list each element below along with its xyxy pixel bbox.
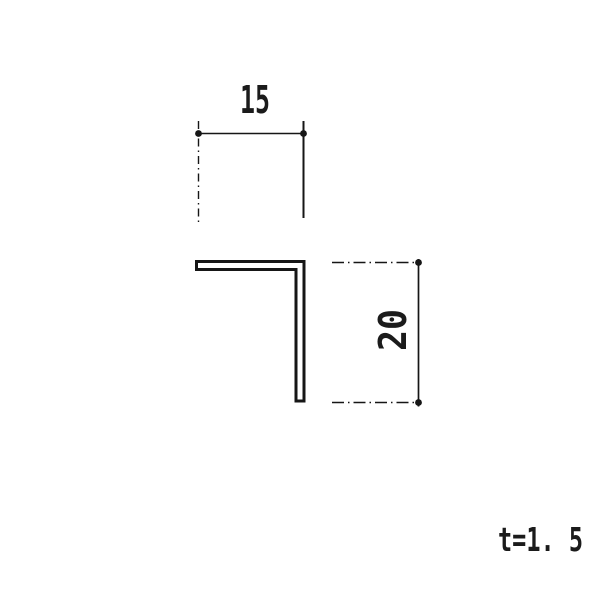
width-dimension-label: 15: [240, 78, 270, 122]
angle-profile: [197, 262, 305, 402]
angle-profile-outline: [197, 262, 305, 402]
technical-drawing-canvas: 15 20 t=1. 5: [0, 0, 600, 600]
dimension-endpoint-dot: [415, 259, 422, 266]
technical-drawing-page: 15 20 t=1. 5: [0, 0, 600, 600]
height-dimension-label: 20: [371, 309, 415, 351]
width-dimension: 15: [195, 78, 307, 222]
dimension-endpoint-dot: [415, 399, 422, 406]
dimension-endpoint-dot: [195, 130, 202, 137]
height-dimension: 20: [332, 259, 422, 407]
thickness-note: t=1. 5: [498, 520, 583, 559]
dimension-endpoint-dot: [300, 130, 307, 137]
